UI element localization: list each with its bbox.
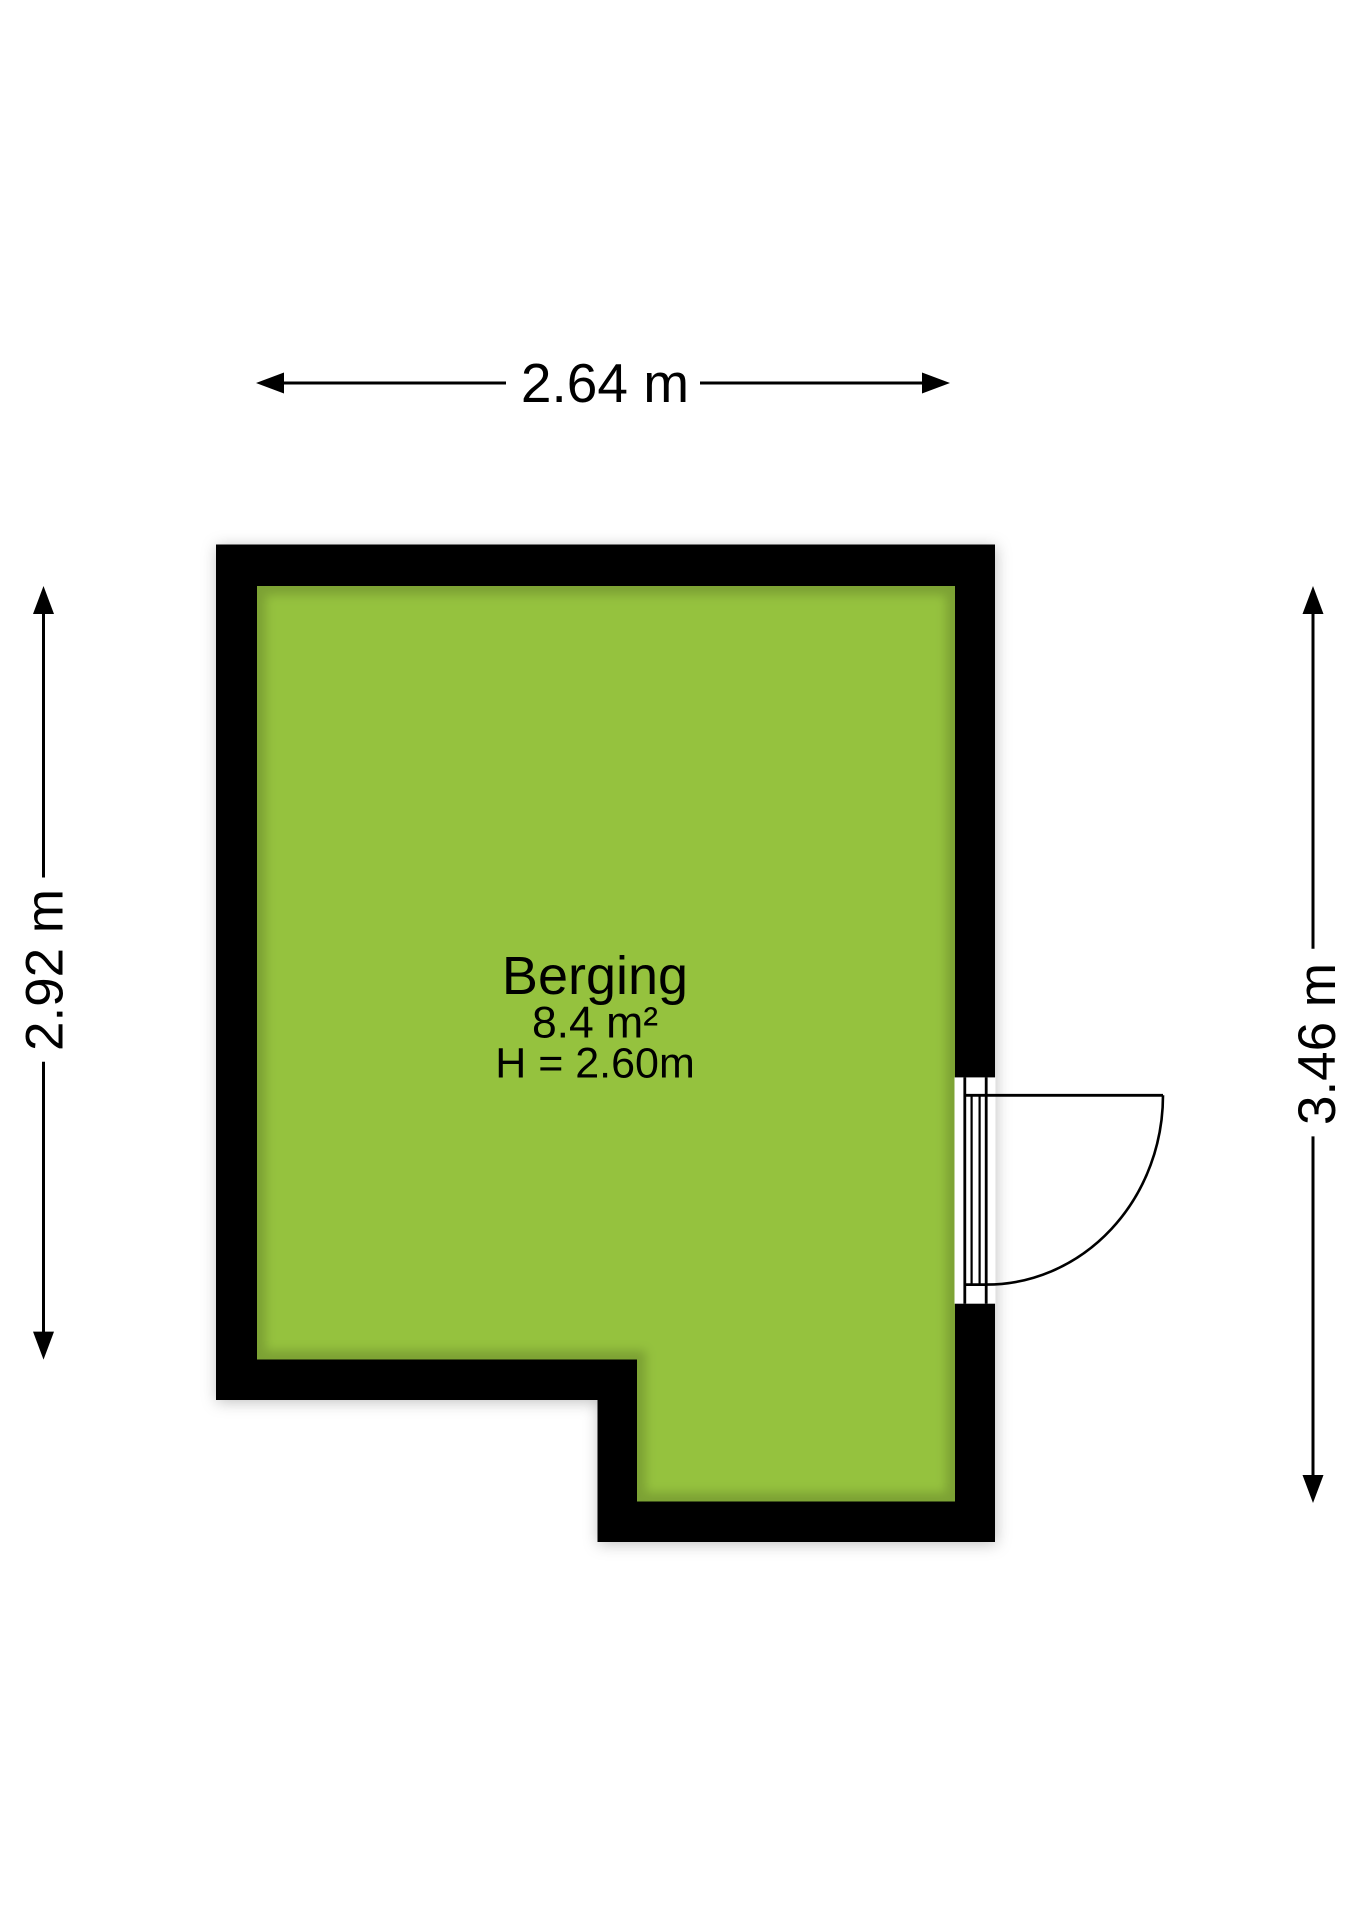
svg-text:3.46 m: 3.46 m xyxy=(1288,963,1347,1125)
svg-text:Berging: Berging xyxy=(502,946,688,1006)
svg-text:H = 2.60m: H = 2.60m xyxy=(495,1040,695,1088)
svg-text:2.92 m: 2.92 m xyxy=(16,889,75,1051)
svg-text:2.64 m: 2.64 m xyxy=(521,352,689,414)
